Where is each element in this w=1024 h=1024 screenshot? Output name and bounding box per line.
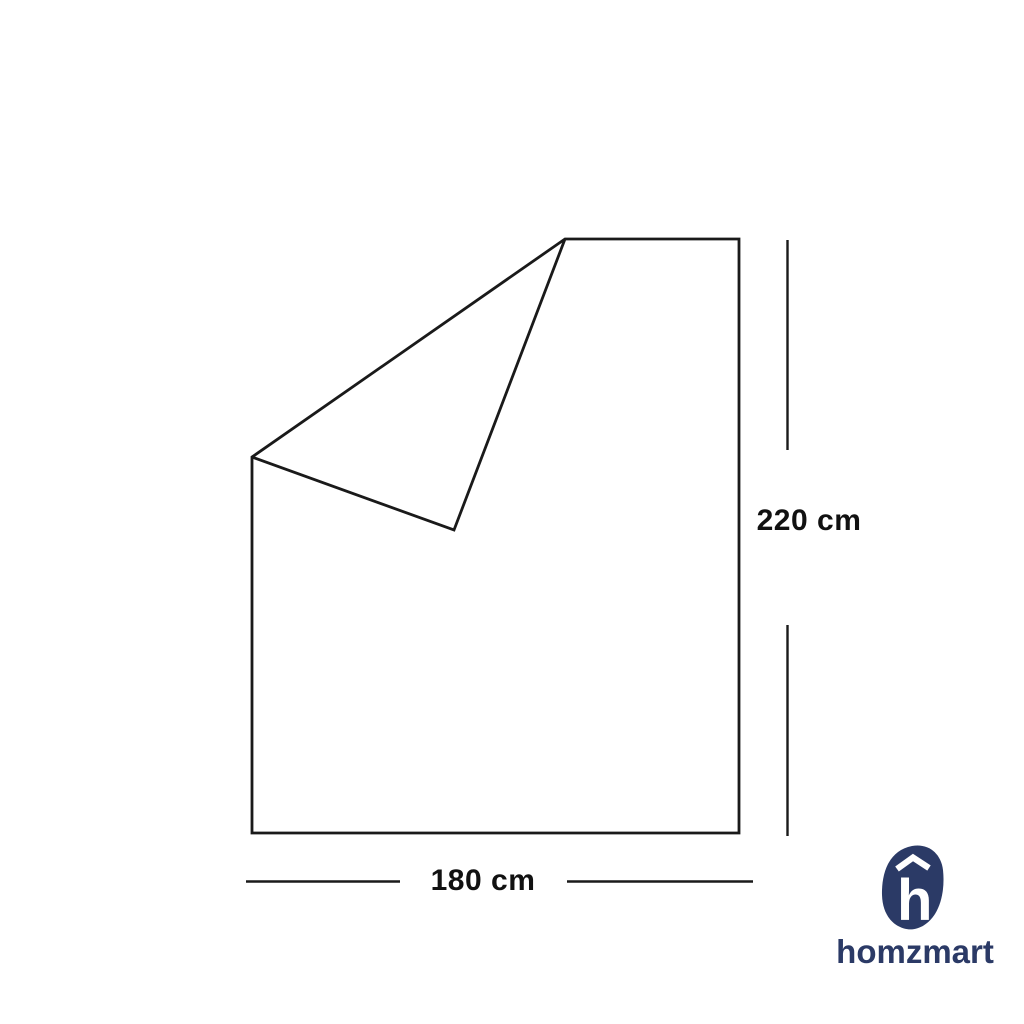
product-dimension-diagram: 220 cm 180 cm h homzmart [0, 0, 1024, 1024]
homzmart-h-blob-icon: h [880, 844, 946, 932]
height-dimension-label: 220 cm [747, 504, 871, 538]
sheet-outline [252, 239, 739, 833]
homzmart-wordmark: homzmart [820, 935, 1010, 969]
width-dimension-label: 180 cm [421, 864, 545, 898]
homzmart-logo: h homzmart [820, 840, 1010, 975]
logo-h-letter: h [897, 868, 932, 932]
